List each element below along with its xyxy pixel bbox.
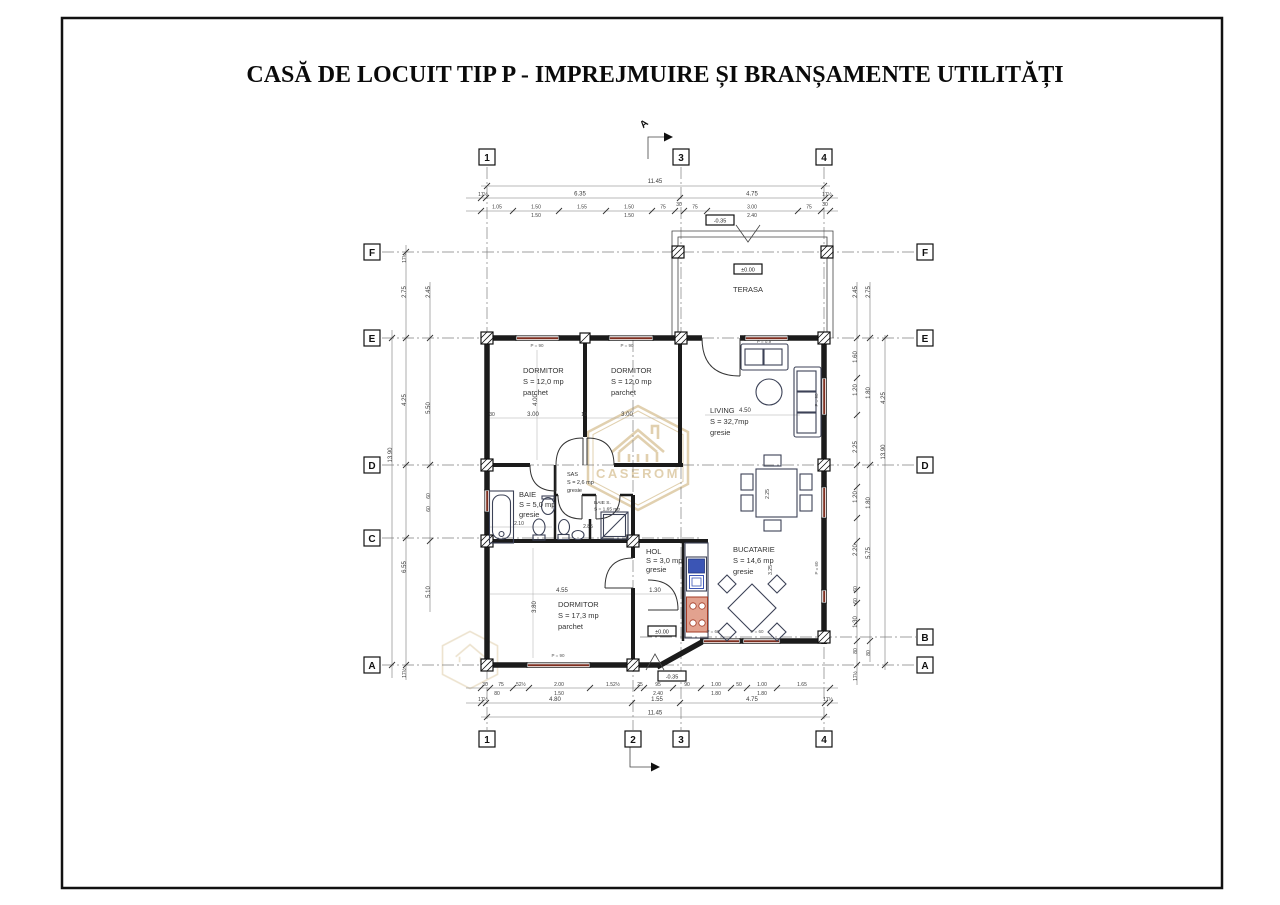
room-label-baie-s: BAIE S. <box>594 500 611 506</box>
parapet-label: P = 90 <box>814 393 819 407</box>
column <box>672 246 684 258</box>
dim-label: 75 <box>806 205 812 211</box>
dim-label: 60 <box>426 493 432 499</box>
page-title: CASĂ DE LOCUIT TIP P - IMPREJMUIRE ȘI BR… <box>246 61 1063 89</box>
dim-label: 4.25 <box>402 394 408 406</box>
svg-text:E: E <box>369 334 376 345</box>
dim-label: 1.80 <box>757 691 767 697</box>
svg-text:A: A <box>921 661 928 672</box>
room-area: S = 1,65 mp <box>594 507 620 513</box>
dim-label: 2.10 <box>514 521 524 527</box>
svg-text:-0.35: -0.35 <box>714 219 727 225</box>
column <box>821 246 833 258</box>
room-label-dormitor1: DORMITOR <box>523 366 564 375</box>
dim-label: 2.20 <box>853 544 859 556</box>
dim-label: 1.50 <box>531 205 541 211</box>
parapet-label: P = 60 <box>706 629 720 634</box>
grid-marker-right-B: B <box>917 629 933 645</box>
room-label-dormitor2: DORMITOR <box>611 366 652 375</box>
dim-label: 2.85 <box>583 524 593 530</box>
column <box>481 659 493 671</box>
dim-label: 1.00 <box>757 682 767 688</box>
parapet-label: P = 90 <box>551 653 565 658</box>
dim-label: 1.20 <box>853 384 859 396</box>
parapet-label: P = 0.9 <box>757 339 772 344</box>
room-floor: gresie <box>519 510 539 519</box>
level-terrace-entry: -0.35 <box>706 215 734 225</box>
dim-label: 4.25 <box>881 392 887 404</box>
dim-label: 17½ <box>823 696 834 703</box>
room-label-dormitor3: DORMITOR <box>558 600 599 609</box>
dim-label: 17½ <box>478 696 489 703</box>
dim-label: 3.25 <box>768 565 774 575</box>
dim-label: 13.90 <box>881 444 887 460</box>
dim-label: 95 <box>655 682 661 688</box>
room-floor: gresie <box>646 565 666 574</box>
column <box>481 332 493 344</box>
grid-marker-bottom-1: 1 <box>479 731 495 747</box>
dim-label: 4.75 <box>746 192 758 198</box>
grid-marker-bottom-2: 2 <box>625 731 641 747</box>
room-label-sas: SAS <box>567 472 578 478</box>
grid-marker-top-4: 4 <box>816 149 832 165</box>
column <box>818 332 830 344</box>
dim-label: 1.80 <box>711 691 721 697</box>
dim-label: 2.45 <box>853 286 859 298</box>
svg-text:B: B <box>921 633 928 644</box>
dim-label: 80 <box>866 650 872 656</box>
svg-text:A: A <box>368 661 375 672</box>
dim-label: 4.80 <box>549 697 561 703</box>
grid-marker-top-1: 1 <box>479 149 495 165</box>
room-label-baie: BAIE <box>519 490 536 499</box>
dim-label: 17½ <box>401 667 408 678</box>
dim-label: 17½ <box>401 252 408 263</box>
dim-label: 2.40 <box>747 213 757 219</box>
grid-marker-left-D: D <box>364 457 380 473</box>
room-area: S = 32,7mp <box>710 417 749 426</box>
level-hol: ±0.00 <box>648 626 676 636</box>
room-floor: gresie <box>733 567 753 576</box>
svg-text:1: 1 <box>484 153 490 164</box>
svg-text:-0.35: -0.35 <box>666 675 679 681</box>
room-floor: parchet <box>558 622 584 631</box>
svg-text:3: 3 <box>678 735 684 746</box>
dim-label: 1.65 <box>797 682 807 688</box>
grid-marker-left-C: C <box>364 530 380 546</box>
dim-label: 3.00 <box>747 205 757 211</box>
parapet-label: P = 90 <box>530 343 544 348</box>
dim-label: 2.75 <box>866 286 872 298</box>
room-area: S = 14,6 mp <box>733 556 774 565</box>
room-floor: gresie <box>710 428 730 437</box>
dim-label: 60 <box>853 586 859 592</box>
column <box>481 535 493 547</box>
dim-label: 1.60 <box>853 351 859 363</box>
dim-label: 60 <box>853 598 859 604</box>
dim-label: 1.52½ <box>606 681 621 688</box>
dim-label: 30 <box>822 202 828 208</box>
svg-text:3: 3 <box>678 153 684 164</box>
dim-label: 11.45 <box>648 179 663 185</box>
dim-label: 5.75 <box>866 547 872 559</box>
grid-marker-left-A: A <box>364 657 380 673</box>
svg-text:E: E <box>922 334 929 345</box>
svg-text:C: C <box>368 534 375 545</box>
room-label-living: LIVING <box>710 406 735 415</box>
dim-label: 90 <box>684 682 690 688</box>
grid-marker-right-D: D <box>917 457 933 473</box>
stove <box>687 597 708 632</box>
dim-label: 3.00 <box>527 412 539 418</box>
dim-label: 1.80 <box>866 387 872 399</box>
room-area: S = 17,3 mp <box>558 611 599 620</box>
dim-label: 1.30 <box>853 616 859 628</box>
dim-label: 17½ <box>478 191 489 198</box>
column <box>580 333 590 343</box>
dim-label: 6.35 <box>574 192 586 198</box>
dim-label: 75 <box>692 205 698 211</box>
dim-label: 13.90 <box>388 447 394 463</box>
dim-label: 4.50 <box>739 408 751 414</box>
svg-text:D: D <box>921 461 928 472</box>
column <box>675 332 687 344</box>
grid-marker-right-E: E <box>917 330 933 346</box>
level-entry: -0.35 <box>658 671 686 681</box>
grid-marker-bottom-4: 4 <box>816 731 832 747</box>
grid-marker-left-F: F <box>364 244 380 260</box>
dim-label: 1.50 <box>531 213 541 219</box>
dim-label: 75 <box>660 205 666 211</box>
parapet-label: P = 90 <box>620 343 634 348</box>
room-area: S = 3,0 mp <box>646 556 682 565</box>
dim-label: 30 <box>489 412 495 418</box>
dim-label: 6.55 <box>402 561 408 573</box>
svg-text:±0.00: ±0.00 <box>655 630 669 636</box>
dim-label: 1.50 <box>624 205 634 211</box>
sheet-border <box>62 18 1222 888</box>
dim-label: 3.80 <box>532 601 538 613</box>
dim-label: 2.25 <box>853 441 859 453</box>
room-area: S = 12,0 mp <box>523 377 564 386</box>
column <box>627 659 639 671</box>
svg-text:4: 4 <box>821 735 827 746</box>
column <box>818 631 830 643</box>
dim-label: 17½ <box>822 191 833 198</box>
room-floor: gresie <box>567 488 582 494</box>
dim-label: 11.45 <box>648 711 663 717</box>
room-label-hol: HOL <box>646 547 661 556</box>
svg-text:2: 2 <box>630 735 636 746</box>
dim-label: 25 <box>637 682 643 688</box>
room-label-bucatarie: BUCATARIE <box>733 545 775 554</box>
dim-label: 2.75 <box>402 286 408 298</box>
dim-label: 5.10 <box>426 586 432 598</box>
room-floor: parchet <box>611 388 637 397</box>
dim-label: 1.80 <box>866 497 872 509</box>
dim-label: 50 <box>736 682 742 688</box>
room-area: S = 2,6 mp <box>567 480 594 486</box>
level-terasa: ±0.00 <box>734 264 762 274</box>
dim-label: 10 <box>581 412 587 418</box>
watermark-brand: CASEROM <box>596 466 680 481</box>
grid-marker-right-A: A <box>917 657 933 673</box>
dim-label: 1.20 <box>853 491 859 503</box>
svg-text:F: F <box>369 248 375 259</box>
grid-marker-top-3: 3 <box>673 149 689 165</box>
svg-text:D: D <box>368 461 375 472</box>
dim-label: 80 <box>853 648 859 654</box>
dim-label: 4.00 <box>533 394 539 406</box>
dim-label: 1.55 <box>577 205 587 211</box>
dim-label: 80 <box>494 691 500 697</box>
room-area: S = 12,0 mp <box>611 377 652 386</box>
dim-label: 1.50 <box>624 213 634 219</box>
column <box>481 459 493 471</box>
dim-label: 4.75 <box>746 697 758 703</box>
grid-marker-left-E: E <box>364 330 380 346</box>
dim-label: 17½ <box>852 670 859 681</box>
drawing-sheet: CASĂ DE LOCUIT TIP P - IMPREJMUIRE ȘI BR… <box>0 0 1280 905</box>
svg-text:F: F <box>922 248 928 259</box>
svg-text:4: 4 <box>821 153 827 164</box>
dim-label: 4.55 <box>556 588 568 594</box>
column <box>818 459 830 471</box>
grid-marker-bottom-3: 3 <box>673 731 689 747</box>
dim-label: 52½ <box>516 681 527 688</box>
dim-label: 30 <box>676 202 682 208</box>
dim-label: 3.00 <box>621 412 633 418</box>
dim-label: 2.45 <box>426 286 432 298</box>
column <box>627 535 639 547</box>
dim-label: 1.30 <box>649 588 661 594</box>
dim-label: 1.55 <box>651 697 663 703</box>
dim-label: 1.05 <box>492 205 502 211</box>
svg-text:±0.00: ±0.00 <box>741 268 755 274</box>
floor-plan-svg: CASĂ DE LOCUIT TIP P - IMPREJMUIRE ȘI BR… <box>0 0 1280 905</box>
room-area: S = 5,0 mp <box>519 500 555 509</box>
dim-label: 2.25 <box>765 489 771 499</box>
dim-label: 1.00 <box>711 682 721 688</box>
grid-marker-right-F: F <box>917 244 933 260</box>
svg-text:1: 1 <box>484 735 490 746</box>
parapet-label: P = 60 <box>814 561 819 575</box>
dim-label: 60 <box>426 506 432 512</box>
dim-label: 30 <box>482 682 488 688</box>
dim-label: 5.50 <box>426 402 432 414</box>
dim-label: 2.00 <box>554 682 564 688</box>
room-label-terasa: TERASA <box>733 285 763 294</box>
parapet-label: P = 60 <box>750 629 764 634</box>
dim-label: 75 <box>498 682 504 688</box>
